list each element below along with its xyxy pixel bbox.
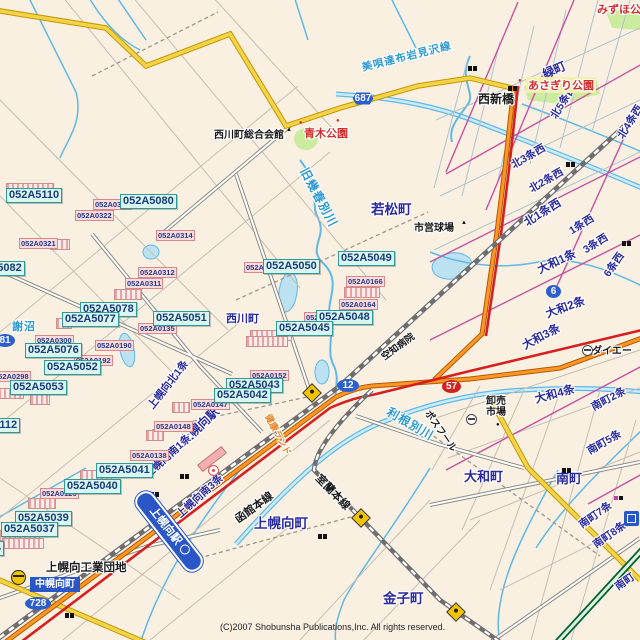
mesh-code-label-cyan: 052A5080 <box>120 194 177 209</box>
stacked-label-bar <box>30 394 50 405</box>
mesh-code-label-pink: 052A0314 <box>156 230 195 241</box>
mesh-code-label-pink: 052A0138 <box>130 450 169 461</box>
district-label: 上幌向町 <box>254 512 308 532</box>
stacked-label-bar <box>344 287 380 298</box>
bridge-icon <box>468 66 477 71</box>
mesh-code-label-pink: 052A0321 <box>19 238 58 249</box>
poi-pair-icon <box>614 496 623 500</box>
poi-marker-icon: ▲ <box>461 220 467 226</box>
town-name-box: 中幌向町 <box>30 577 80 592</box>
park-name-label: 青木公園 <box>304 125 348 141</box>
route-shield: 6 <box>546 285 561 298</box>
stacked-label-bar <box>28 498 56 509</box>
park-name-label: みずほ公園 <box>597 1 640 17</box>
poi-marker-icon: ● <box>518 78 522 84</box>
mesh-code-label-cyan: 052A5049 <box>338 251 395 266</box>
stacked-label-bar <box>246 336 288 347</box>
mesh-code-label-cyan: 052A5110 <box>6 188 62 203</box>
district-label: 西川町 <box>226 310 259 326</box>
mesh-code-label-cyan: 052A5082 <box>0 261 25 276</box>
mesh-code-label-cyan: 052A5045 <box>276 321 333 336</box>
mesh-code-label-pink: 052A0166 <box>346 276 385 287</box>
mesh-code-label-pink: 052A0311 <box>125 278 163 289</box>
district-label: 大和町 <box>464 466 503 485</box>
expressway <box>552 548 640 640</box>
store-icon <box>582 345 593 356</box>
park-name-label: あさぎり公園 <box>526 77 596 93</box>
mesh-code-label-cyan: 4 <box>0 541 4 556</box>
stacked-label-bar <box>2 538 44 549</box>
poi-marker-icon: ● <box>299 120 303 126</box>
place-label: 西川町総合会館 <box>214 126 284 141</box>
place-label: 市営球場 <box>414 219 454 234</box>
facility-icon <box>624 511 639 526</box>
map-canvas[interactable]: 052A0317052A0322052A0321052A0314052A0312… <box>0 0 640 640</box>
mesh-code-label-cyan: 052A5042 <box>214 388 271 403</box>
station-dot-icon <box>178 542 192 556</box>
poi-marker-icon: ● <box>496 422 500 428</box>
mesh-code-label-pink: 052A0148 <box>154 421 193 432</box>
mesh-code-label-pink: 052A0164 <box>339 299 378 310</box>
mesh-code-label-cyan: 052A5076 <box>25 343 82 358</box>
mesh-code-label-cyan: 052A5077 <box>62 312 119 327</box>
mesh-code-label-pink: 052A0190 <box>95 340 134 351</box>
route-shield: 728 <box>25 597 51 610</box>
bridge-icon <box>318 534 327 539</box>
bridge-icon <box>180 474 189 479</box>
mesh-code-label-cyan: 052A5037 <box>1 522 58 537</box>
place-label: ダイエー <box>592 342 632 357</box>
mesh-code-label-cyan: 052A5040 <box>64 479 121 494</box>
poi-marker-icon: ● <box>336 118 340 124</box>
mesh-code-label-cyan: 052A5052 <box>44 360 101 375</box>
place-label: 卸売市場 <box>486 396 510 418</box>
district-label: 若松町 <box>371 198 412 218</box>
bridge-icon <box>622 241 631 246</box>
mesh-code-label-pink: 052A0312 <box>138 267 177 278</box>
mesh-code-label-cyan: 052A5053 <box>10 380 67 395</box>
interchange-circle-icon <box>11 570 26 585</box>
district-label: 金子町 <box>383 587 424 607</box>
place-label: 上幌向工業団地 <box>46 559 127 575</box>
mesh-code-label-pink: 052A0322 <box>75 210 114 221</box>
copyright-notice: (C)2007 Shobunsha Publications,Inc. All … <box>220 622 445 632</box>
bridge-icon <box>562 468 571 473</box>
stacked-label-bar <box>114 289 142 300</box>
mesh-code-label-cyan: 052A5041 <box>96 463 153 478</box>
mesh-code-label-cyan: 052A5112 <box>0 418 20 433</box>
bridge-icon <box>566 162 575 167</box>
bridge-icon <box>65 613 74 618</box>
water-name-label: 謝沼 <box>12 318 36 334</box>
place-label: 西新橋 <box>478 90 514 107</box>
route-shield: 57 <box>442 380 461 393</box>
mesh-code-label-cyan: 052A5051 <box>153 311 210 326</box>
store-icon <box>466 414 477 425</box>
route-shield: 12 <box>337 379 359 392</box>
stacked-label-bar <box>172 402 190 413</box>
poi-marker-icon: ▲ <box>286 127 292 133</box>
mesh-code-label-cyan: 052A5050 <box>263 259 320 274</box>
bridge-icon <box>508 86 517 91</box>
station-marker-icon <box>208 465 219 476</box>
